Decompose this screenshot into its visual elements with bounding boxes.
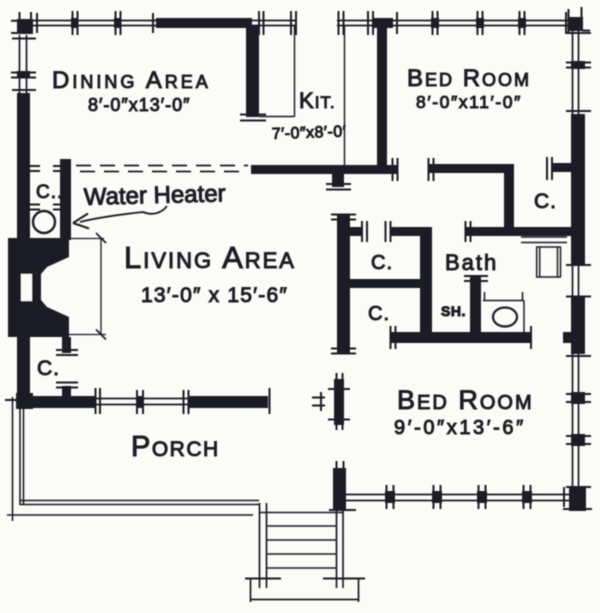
svg-text:C.: C. (37, 357, 60, 380)
svg-text:PORCH: PORCH (131, 431, 220, 463)
svg-text:9′-0″x13′-6″: 9′-0″x13′-6″ (394, 417, 526, 439)
svg-text:SH.: SH. (441, 303, 466, 319)
svg-text:8′-0″x11′-0″: 8′-0″x11′-0″ (416, 92, 522, 112)
svg-text:C.: C. (368, 303, 390, 325)
svg-text:8′-0″x13′-0″: 8′-0″x13′-0″ (88, 95, 191, 115)
svg-text:Bath: Bath (445, 250, 498, 275)
svg-text:DINING AREA: DINING AREA (52, 67, 211, 94)
svg-text:Water Heater: Water Heater (83, 180, 225, 211)
svg-text:C.: C. (534, 190, 557, 213)
svg-text:KIT.: KIT. (299, 88, 336, 113)
svg-text:C.: C. (371, 252, 393, 274)
svg-text:13′-0″ x 15′-6″: 13′-0″ x 15′-6″ (141, 284, 288, 307)
svg-text:LIVING AREA: LIVING AREA (124, 240, 296, 275)
svg-text:7′-0″x8′-0′: 7′-0″x8′-0′ (272, 123, 347, 143)
svg-text:BED ROOM: BED ROOM (407, 65, 531, 92)
svg-text:C..: C.. (36, 182, 63, 203)
svg-text:BED ROOM: BED ROOM (397, 385, 534, 415)
